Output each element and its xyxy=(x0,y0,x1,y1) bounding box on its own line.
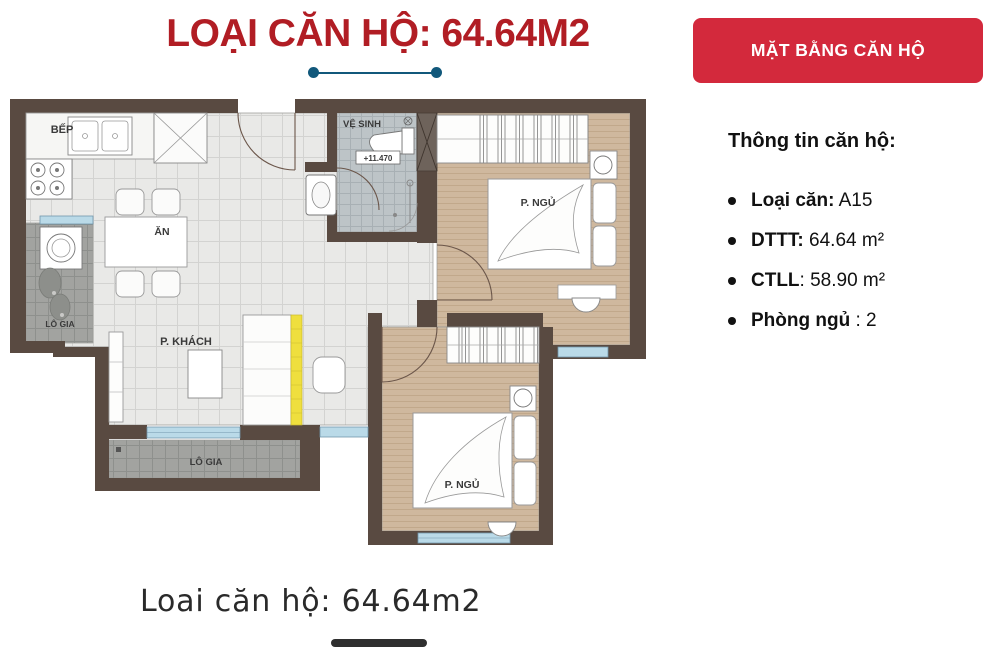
label-loggia-bottom: LÔ GIA xyxy=(190,456,223,468)
info-item-dttt: DTTT: 64.64 m² xyxy=(728,230,1000,252)
bullet-icon xyxy=(728,277,736,285)
gap-window xyxy=(320,427,368,437)
info-list: Loại căn: A15 DTTT: 64.64 m² CTLL: 58.90… xyxy=(728,190,1000,332)
bottom-divider-bar xyxy=(331,639,427,647)
plant xyxy=(39,268,61,298)
label-kitchen: BẾP xyxy=(51,123,74,136)
label-bedroom2: P. NGỦ xyxy=(445,478,480,491)
washing-machine xyxy=(40,227,82,269)
sofa xyxy=(243,315,291,425)
label-dining: ĂN xyxy=(154,225,169,238)
bullet-icon xyxy=(728,237,736,245)
label-living: P. KHÁCH xyxy=(160,335,212,348)
page-title: LOẠI CĂN HỘ: 64.64M2 xyxy=(60,12,696,56)
plan-caption: Loai căn hộ: 64.64m2 xyxy=(140,584,481,619)
info-item-type: Loại căn: A15 xyxy=(728,190,1000,212)
shaft-column xyxy=(417,113,437,171)
divider-dot-right xyxy=(431,67,442,78)
coffee-table xyxy=(188,350,222,398)
bullet-icon xyxy=(728,317,736,325)
floor-plan-button[interactable]: MẶT BẰNG CĂN HỘ xyxy=(693,18,983,83)
info-item-bedrooms: Phòng ngủ : 2 xyxy=(728,310,1000,332)
label-level: +11.470 xyxy=(364,154,393,163)
toilet-tank xyxy=(402,128,414,154)
label-bedroom1: P. NGỦ xyxy=(521,196,556,209)
floor-plan: BẾP ĂN VỆ SINH +11.470 P. NGỦ P. NGỦ P. … xyxy=(10,95,646,565)
title-divider xyxy=(308,67,442,79)
tv-console xyxy=(109,332,123,422)
loggia-left-window xyxy=(40,216,93,224)
divider-line xyxy=(313,72,437,75)
bedroom1-window xyxy=(558,347,608,357)
desk-1 xyxy=(558,285,616,299)
apartment-info-panel: Thông tin căn hộ: Loại căn: A15 DTTT: 64… xyxy=(728,130,1000,350)
sofa-yellow-stripe xyxy=(291,315,302,425)
dining-table xyxy=(105,217,187,267)
info-item-ctll: CTLL: 58.90 m² xyxy=(728,270,1000,292)
drain-mark xyxy=(116,447,121,452)
label-loggia-left: LÔ GIA xyxy=(45,318,74,329)
bullet-icon xyxy=(728,197,736,205)
label-bathroom: VỆ SINH xyxy=(343,118,381,130)
info-heading: Thông tin căn hộ: xyxy=(728,130,1000,153)
plant xyxy=(50,294,70,320)
kitchen-sink xyxy=(68,117,132,155)
armchair xyxy=(313,357,345,393)
